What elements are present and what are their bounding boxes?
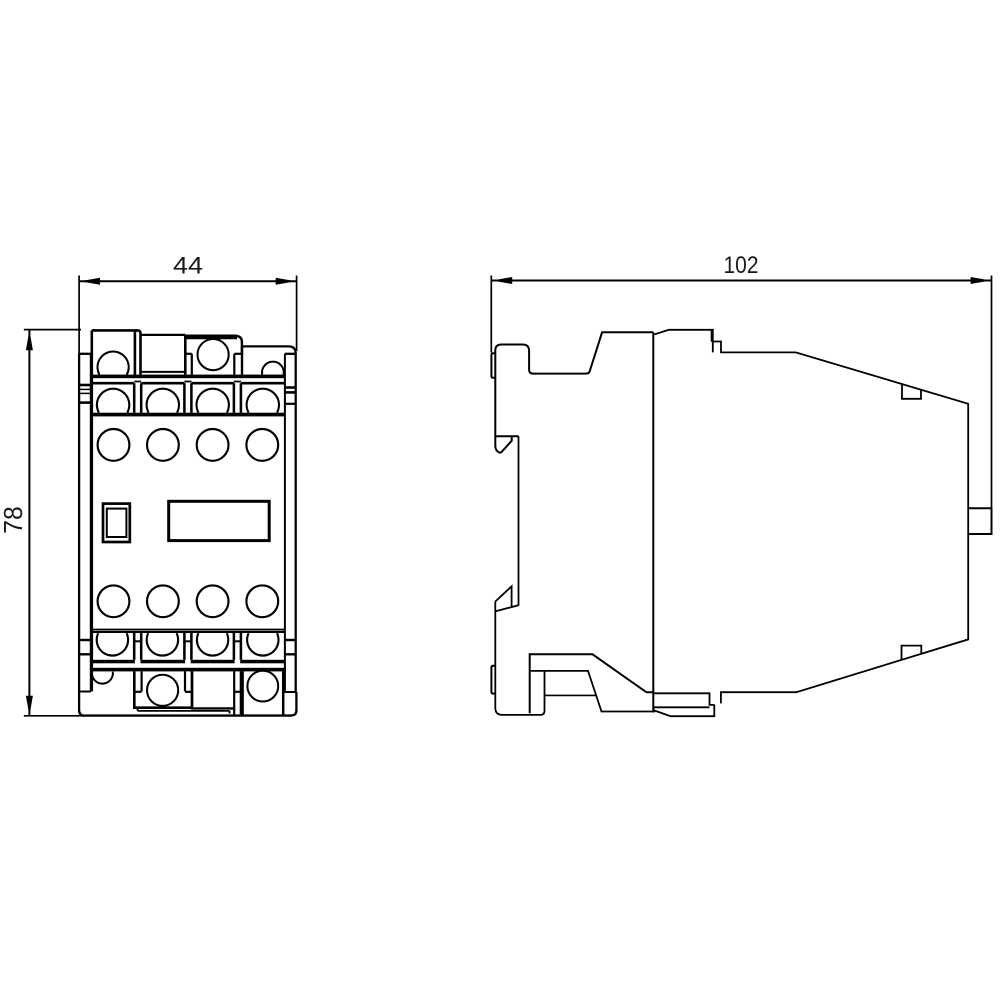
svg-text:44: 44 bbox=[173, 253, 203, 280]
svg-text:102: 102 bbox=[724, 252, 759, 279]
svg-text:78: 78 bbox=[0, 506, 28, 534]
